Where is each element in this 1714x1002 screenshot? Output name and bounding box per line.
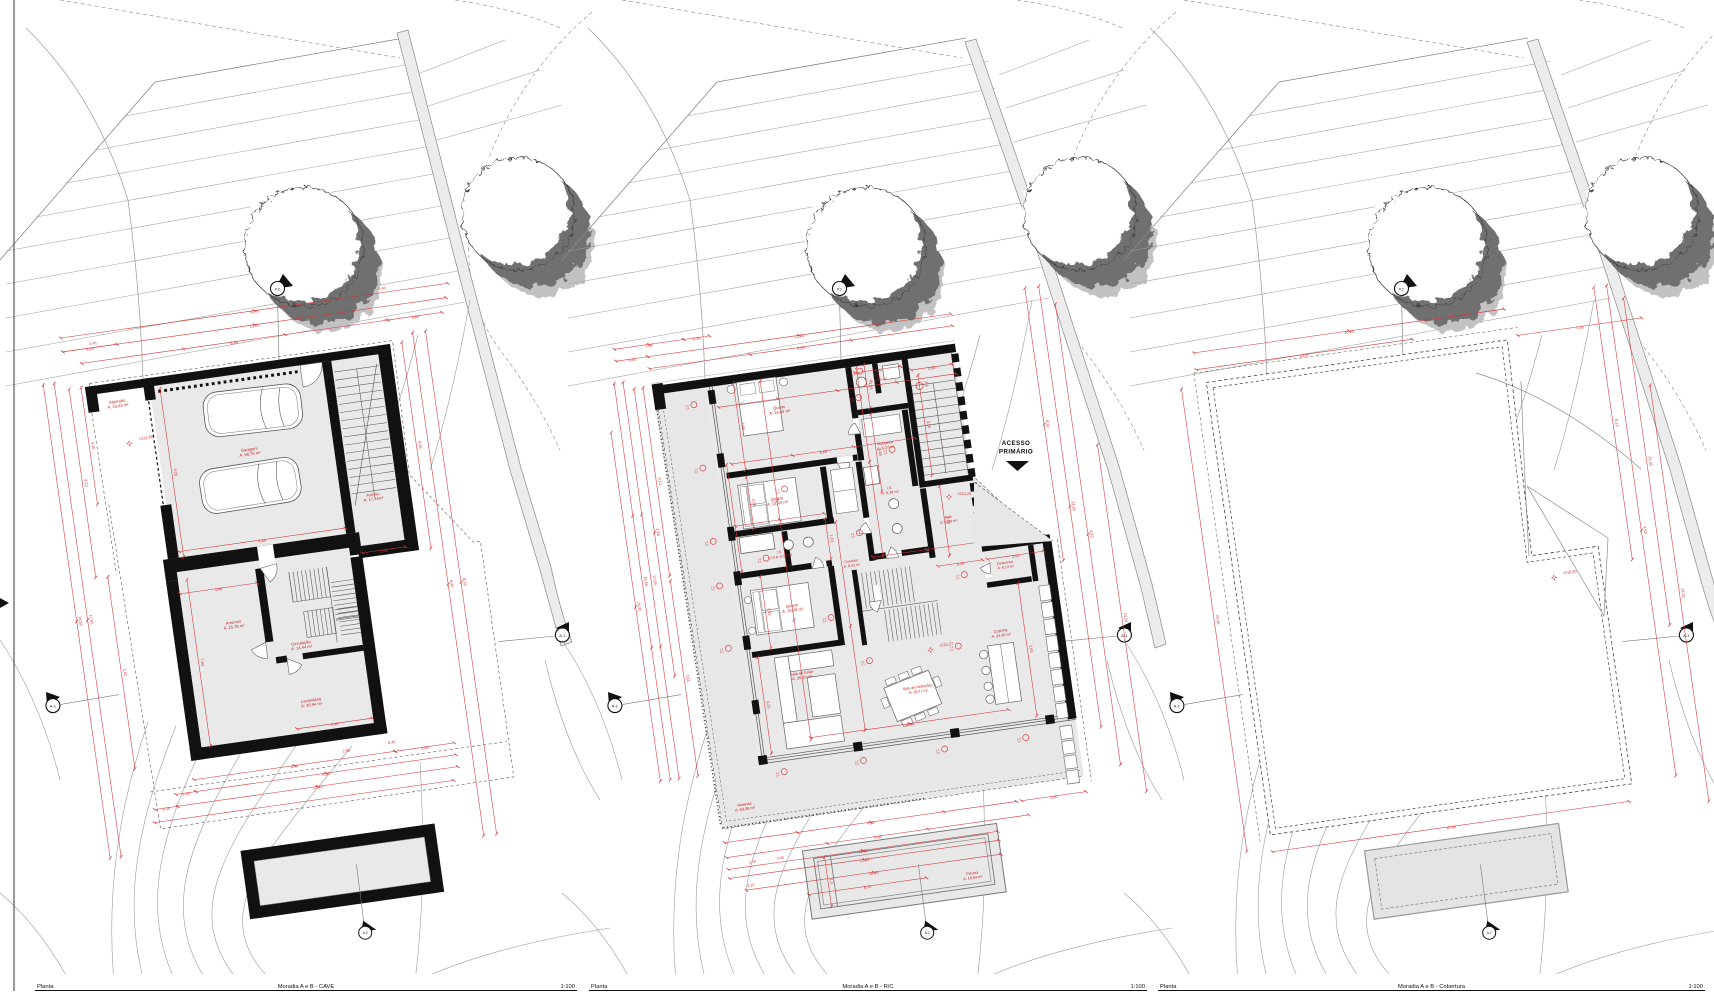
- svg-text:1:100: 1:100: [1130, 984, 1145, 990]
- svg-text:2,23: 2,23: [946, 516, 952, 524]
- svg-text:8,86: 8,86: [819, 449, 827, 455]
- svg-text:Moradia A e B - R/C: Moradia A e B - R/C: [842, 984, 893, 990]
- svg-text:Moradia A e B - CAVE: Moradia A e B - CAVE: [278, 984, 335, 990]
- svg-text:2,88: 2,88: [927, 365, 935, 371]
- svg-text:8,46: 8,46: [291, 763, 299, 769]
- svg-text:6,46: 6,46: [417, 441, 423, 449]
- svg-text:2,86: 2,86: [342, 748, 350, 754]
- svg-text:A-1: A-1: [612, 704, 619, 709]
- svg-text:Moradia A e B - Cobertura: Moradia A e B - Cobertura: [1398, 984, 1466, 990]
- svg-text:1:100: 1:100: [1688, 984, 1703, 990]
- svg-text:7,6: 7,6: [924, 547, 930, 553]
- svg-text:A-2: A-2: [363, 931, 368, 935]
- svg-text:2,62: 2,62: [122, 668, 128, 676]
- svg-text:2,86: 2,86: [421, 745, 429, 751]
- svg-text:8,86: 8,86: [258, 538, 266, 544]
- svg-text:2,66: 2,66: [411, 314, 419, 320]
- svg-text:0,46: 0,46: [182, 791, 190, 797]
- svg-text:3,48: 3,48: [214, 586, 222, 592]
- svg-text:2,48: 2,48: [655, 528, 661, 536]
- svg-text:1:100: 1:100: [560, 984, 575, 990]
- svg-text:A-1: A-1: [50, 704, 57, 709]
- svg-text:4,45: 4,45: [331, 721, 339, 727]
- svg-text:A-2: A-2: [1487, 931, 1492, 935]
- svg-text:Planta: Planta: [37, 984, 54, 990]
- svg-text:2,66: 2,66: [380, 548, 388, 554]
- svg-text:+215,25: +215,25: [957, 491, 971, 496]
- svg-text:P.2: P.2: [837, 288, 842, 292]
- svg-text:4,53: 4,53: [1642, 526, 1648, 534]
- svg-text:0,46: 0,46: [628, 357, 636, 363]
- svg-text:Planta: Planta: [1160, 984, 1177, 990]
- svg-text:A-1: A-1: [1174, 704, 1181, 709]
- svg-text:3,38: 3,38: [751, 498, 757, 506]
- svg-text:P.2: P.2: [275, 288, 280, 292]
- svg-text:8,86: 8,86: [230, 339, 238, 345]
- svg-text:PRIMÁRIO: PRIMÁRIO: [999, 449, 1033, 456]
- svg-text:8,12: 8,12: [1614, 419, 1620, 427]
- svg-text:0,46: 0,46: [388, 739, 396, 745]
- svg-text:A-2: A-2: [925, 931, 930, 935]
- svg-text:7,63: 7,63: [200, 658, 206, 666]
- svg-text:8,12: 8,12: [1045, 420, 1051, 428]
- svg-text:3,45: 3,45: [956, 561, 964, 567]
- svg-text:A-1: A-1: [1683, 633, 1690, 638]
- svg-text:ACESSO: ACESSO: [1002, 440, 1031, 447]
- svg-text:4,53: 4,53: [1089, 530, 1095, 538]
- svg-text:6,46: 6,46: [449, 580, 455, 588]
- svg-text:0,46: 0,46: [693, 335, 701, 341]
- svg-text:3,38: 3,38: [767, 608, 773, 616]
- svg-text:P.2: P.2: [1399, 288, 1404, 292]
- svg-text:4,08: 4,08: [874, 834, 882, 840]
- svg-text:8,12: 8,12: [657, 477, 663, 485]
- svg-text:2,63: 2,63: [1028, 645, 1034, 653]
- svg-text:7,63: 7,63: [685, 674, 691, 682]
- svg-text:8,12: 8,12: [83, 479, 89, 487]
- svg-text:A-1: A-1: [559, 633, 566, 638]
- svg-text:3,98: 3,98: [740, 422, 746, 430]
- svg-text:1,65: 1,65: [868, 382, 874, 390]
- svg-text:8,86: 8,86: [797, 345, 805, 351]
- svg-text:8,86: 8,86: [322, 771, 330, 777]
- svg-text:4,25: 4,25: [766, 701, 772, 709]
- svg-text:Planta: Planta: [591, 984, 608, 990]
- svg-text:8,53: 8,53: [462, 578, 468, 586]
